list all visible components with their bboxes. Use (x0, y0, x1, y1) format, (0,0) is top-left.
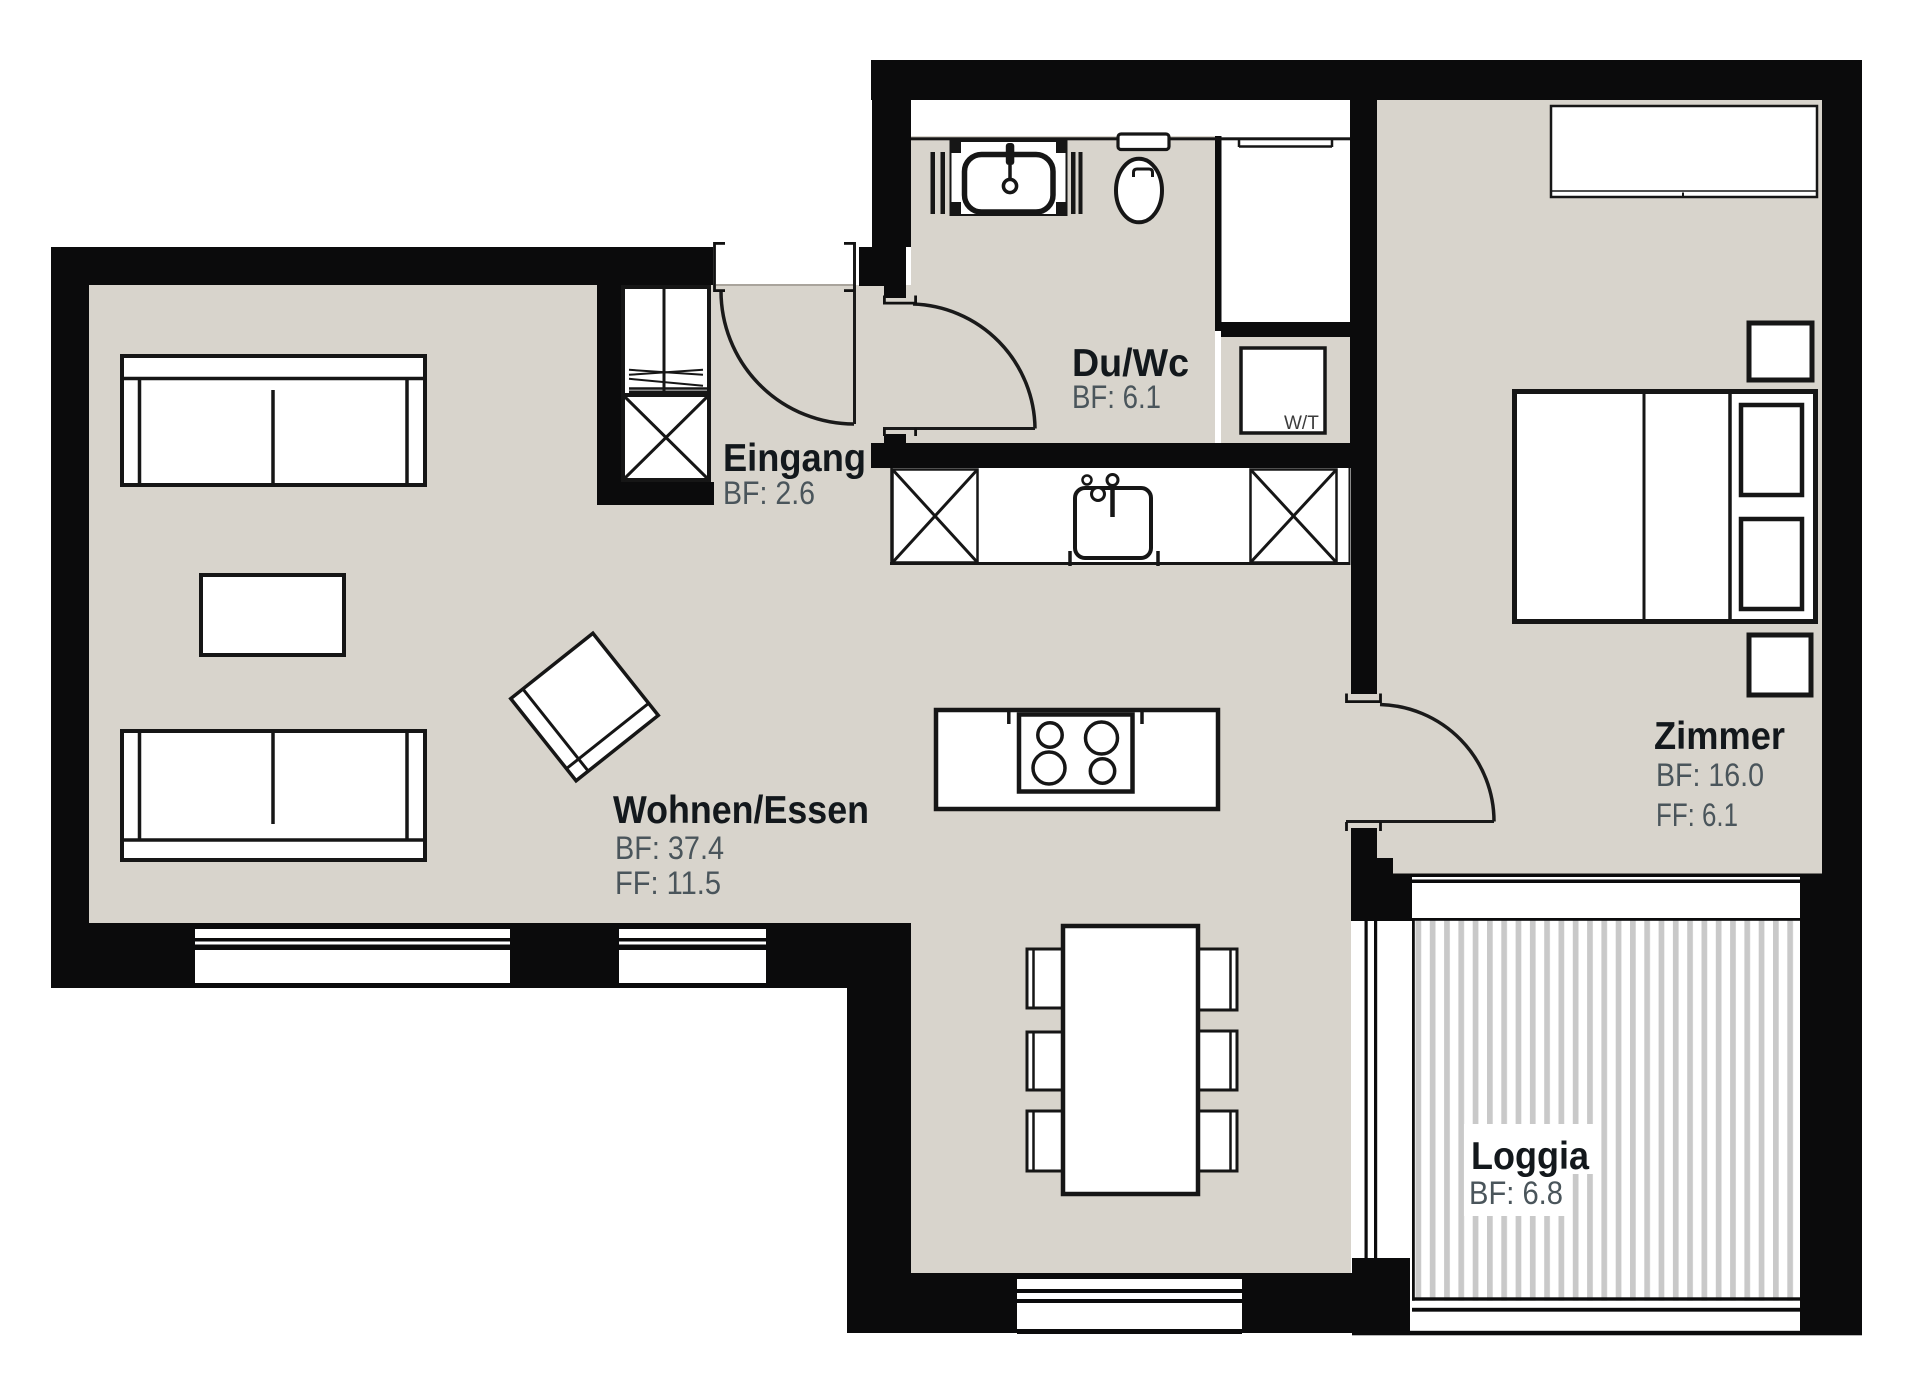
svg-text:BF: 6.1: BF: 6.1 (1072, 379, 1161, 415)
svg-text:BF: 6.8: BF: 6.8 (1469, 1175, 1563, 1211)
svg-text:Wohnen/Essen: Wohnen/Essen (613, 789, 869, 832)
svg-text:W/T: W/T (1284, 413, 1319, 434)
svg-text:Eingang: Eingang (723, 437, 866, 480)
svg-text:FF: 6.1: FF: 6.1 (1656, 797, 1738, 833)
svg-text:Zimmer: Zimmer (1654, 715, 1785, 758)
svg-text:BF: 2.6: BF: 2.6 (723, 475, 815, 511)
svg-text:Loggia: Loggia (1471, 1135, 1589, 1178)
svg-text:BF: 37.4: BF: 37.4 (615, 830, 724, 866)
svg-text:BF: 16.0: BF: 16.0 (1656, 757, 1764, 793)
svg-text:FF: 11.5: FF: 11.5 (615, 865, 721, 901)
